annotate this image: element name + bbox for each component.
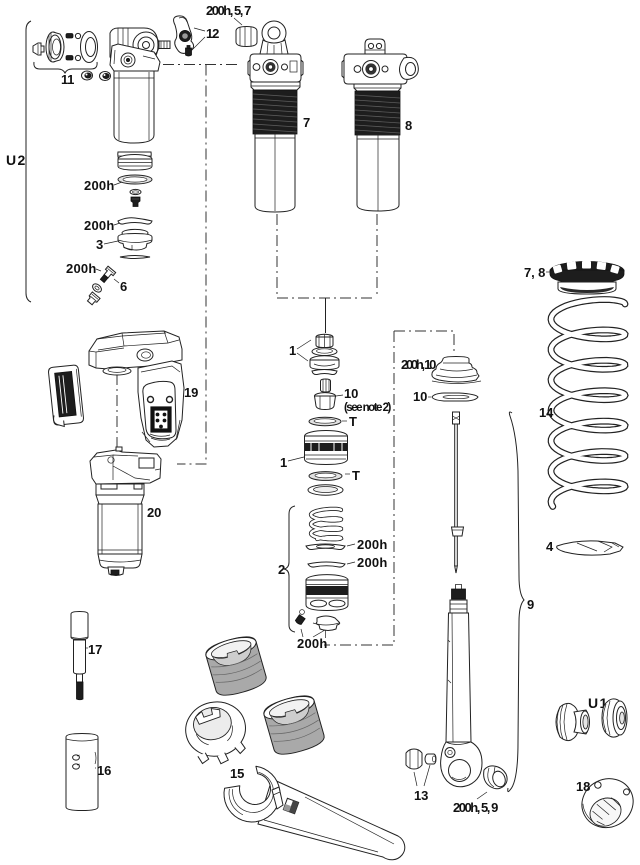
svg-text:13: 13 [414,788,428,803]
svg-text:9: 9 [527,597,534,612]
svg-text:6: 6 [120,279,127,294]
svg-text:U2: U2 [6,152,26,168]
svg-text:200h: 200h [66,261,96,276]
svg-text:(see note 2): (see note 2) [344,402,391,414]
svg-text:200h, 10: 200h, 10 [401,357,436,372]
svg-text:4: 4 [546,539,554,554]
svg-text:10: 10 [413,389,427,404]
svg-text:1: 1 [289,343,296,358]
svg-text:14: 14 [539,405,554,420]
svg-text:3: 3 [96,237,103,252]
svg-text:15: 15 [230,766,244,781]
svg-text:16: 16 [97,763,111,778]
svg-text:17: 17 [88,642,102,657]
svg-text:200h: 200h [84,218,114,233]
svg-text:200h: 200h [357,537,387,552]
svg-text:8: 8 [405,118,412,133]
svg-text:7: 7 [303,115,310,130]
svg-text:T: T [349,414,357,429]
svg-text:200h: 200h [84,178,114,193]
svg-text:10: 10 [344,386,358,401]
svg-text:11: 11 [61,72,74,87]
svg-text:20: 20 [147,505,161,520]
svg-text:2: 2 [278,562,285,577]
svg-text:200h, 5, 9: 200h, 5, 9 [453,800,498,815]
svg-text:7, 8: 7, 8 [524,265,545,280]
svg-text:1: 1 [280,455,287,470]
svg-text:200h: 200h [357,555,387,570]
svg-text:19: 19 [184,385,198,400]
svg-text:18: 18 [576,779,590,794]
svg-text:200h: 200h [297,636,327,651]
svg-text:12: 12 [206,26,219,41]
svg-text:T: T [352,468,360,483]
svg-text:200h, 5, 7: 200h, 5, 7 [206,3,251,18]
